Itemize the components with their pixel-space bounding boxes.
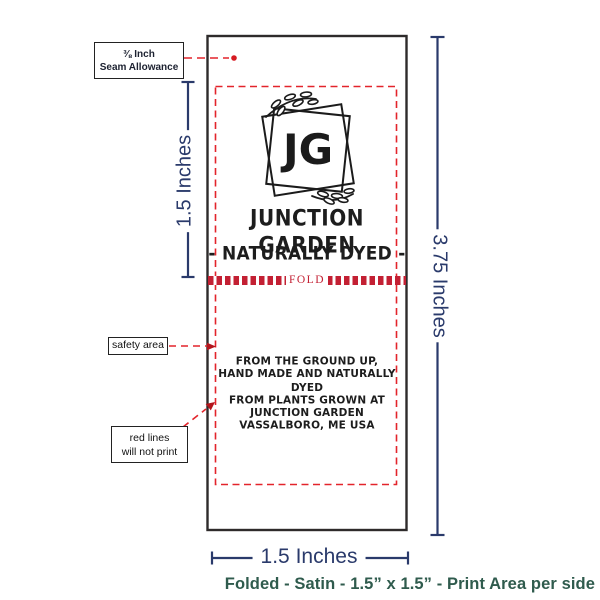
dimension-left-value: 1.5 Inches bbox=[173, 130, 198, 232]
brand-subtitle: - NATURALLY DYED - bbox=[207, 243, 407, 265]
redlines-note: red lines will not print bbox=[111, 426, 188, 463]
seam-allowance-line2: Seam Allowance bbox=[95, 61, 183, 74]
body-line: FROM THE GROUND UP, bbox=[207, 355, 407, 368]
body-line: JUNCTION GARDEN bbox=[207, 407, 407, 420]
product-spec-caption: Folded - Satin - 1.5” x 1.5” - Print Are… bbox=[225, 575, 595, 594]
body-line: FROM PLANTS GROWN AT bbox=[207, 394, 407, 407]
seam-allowance-line1: ⅜ Inch bbox=[95, 48, 183, 61]
seam-allowance-note: ⅜ Inch Seam Allowance bbox=[94, 42, 184, 79]
redlines-line1: red lines bbox=[112, 431, 187, 445]
seam-arrow-dot bbox=[231, 55, 237, 61]
dimension-bottom-value: 1.5 Inches bbox=[253, 543, 366, 571]
body-line: HAND MADE AND NATURALLY DYED bbox=[207, 368, 407, 394]
fold-label: FOLD bbox=[286, 273, 328, 287]
jg-monogram-logo: JG bbox=[252, 90, 364, 205]
body-line: VASSALBORO, ME USA bbox=[207, 420, 407, 433]
label-proof-diagram: JG JUNCTION GARDEN - NATURALLY DYED - FO… bbox=[0, 0, 600, 600]
safety-area-arrow bbox=[169, 343, 216, 350]
monogram-text: JG bbox=[280, 125, 333, 174]
redlines-line2: will not print bbox=[112, 445, 187, 459]
safety-area-note: safety area bbox=[108, 337, 168, 355]
dimension-right-value: 3.75 Inches bbox=[427, 229, 452, 342]
label-body-text: FROM THE GROUND UP, HAND MADE AND NATURA… bbox=[207, 355, 407, 432]
